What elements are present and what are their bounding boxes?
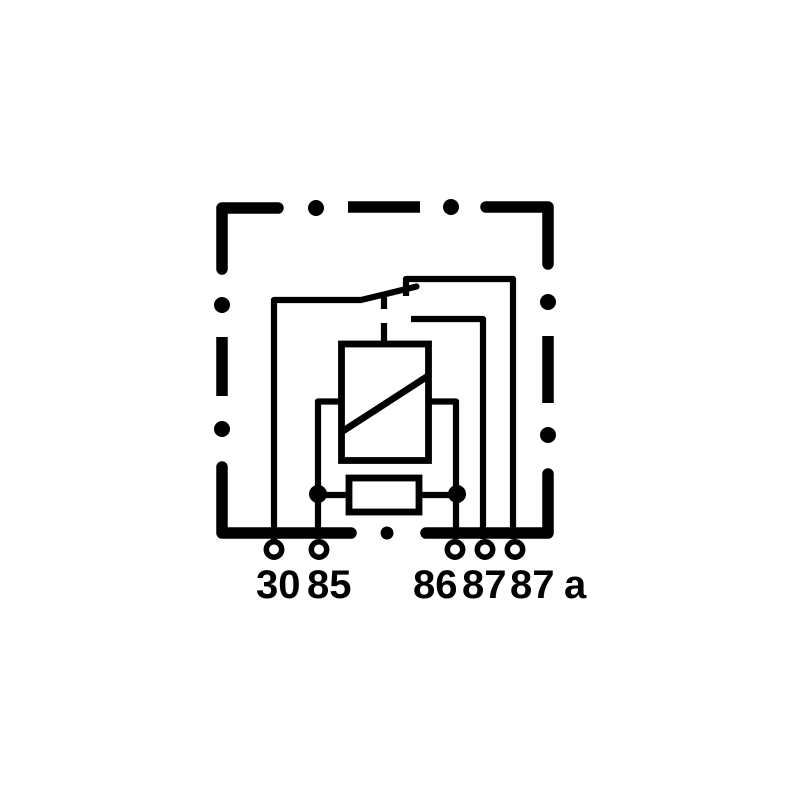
svg-text:87: 87 [510,563,555,607]
svg-text:a: a [564,563,587,607]
svg-text:87: 87 [462,563,507,607]
svg-text:85: 85 [307,563,352,607]
svg-text:30: 30 [256,563,301,607]
svg-text:86: 86 [413,563,458,607]
